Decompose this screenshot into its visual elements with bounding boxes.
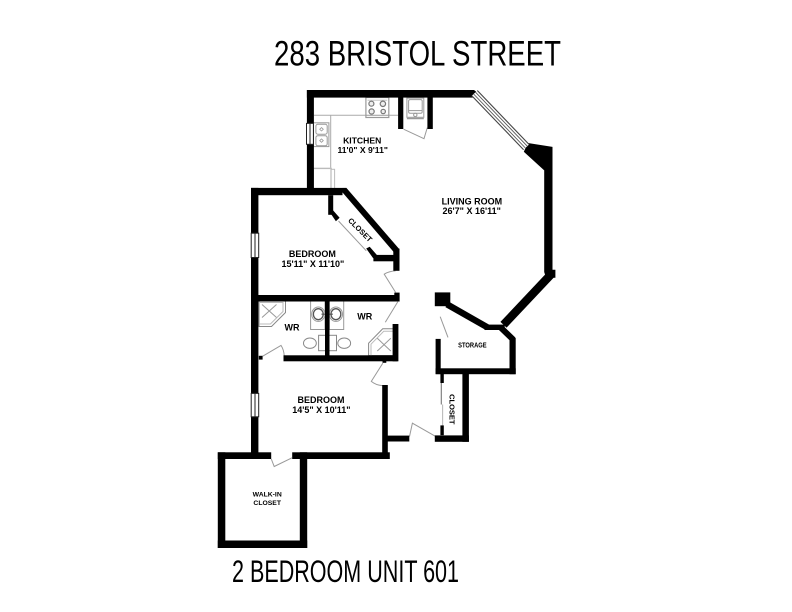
svg-text:283 BRISTOL STREET: 283 BRISTOL STREET	[274, 35, 561, 74]
svg-text:WALK-IN: WALK-IN	[253, 491, 282, 498]
svg-text:15'11" X 11'10": 15'11" X 11'10"	[281, 259, 344, 269]
svg-text:26'7" X 16'11": 26'7" X 16'11"	[443, 206, 501, 216]
svg-text:KITCHEN: KITCHEN	[343, 136, 381, 146]
svg-text:BEDROOM: BEDROOM	[298, 395, 345, 405]
svg-text:14'5" X 10'11": 14'5" X 10'11"	[292, 405, 350, 415]
svg-text:WR: WR	[357, 311, 372, 321]
svg-text:CLOSET: CLOSET	[253, 500, 281, 507]
svg-text:2 BEDROOM UNIT 601: 2 BEDROOM UNIT 601	[232, 553, 459, 589]
svg-text:BEDROOM: BEDROOM	[289, 249, 336, 259]
svg-text:11'0" X 9'11": 11'0" X 9'11"	[337, 145, 387, 155]
svg-text:WR: WR	[285, 323, 300, 333]
svg-text:STORAGE: STORAGE	[458, 340, 487, 349]
svg-text:LIVING ROOM: LIVING ROOM	[442, 197, 503, 207]
svg-text:CLOSET: CLOSET	[448, 394, 457, 425]
